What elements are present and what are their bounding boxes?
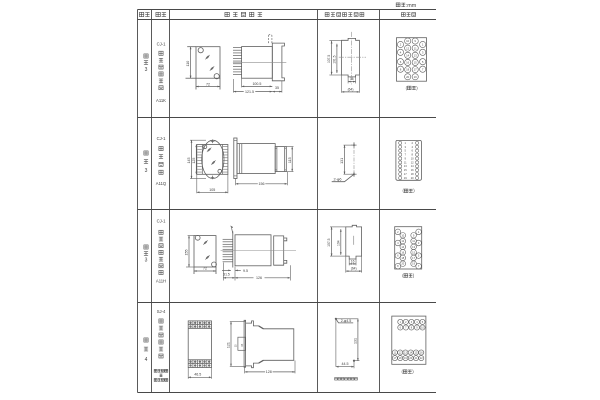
svg-text:1: 1	[405, 141, 407, 145]
svg-text:15: 15	[415, 352, 418, 355]
svg-text:): )	[413, 188, 415, 193]
svg-text:8: 8	[397, 264, 399, 268]
svg-text:131: 131	[354, 338, 358, 344]
svg-text:121: 121	[227, 342, 231, 348]
svg-text:3: 3	[418, 241, 420, 245]
svg-text:2: 2	[405, 321, 407, 324]
svg-text:): )	[413, 273, 415, 278]
svg-text:(64): (64)	[348, 87, 354, 91]
svg-text:3: 3	[145, 67, 148, 73]
svg-text:5: 5	[422, 60, 424, 64]
svg-text:6: 6	[400, 327, 402, 330]
svg-text:18: 18	[411, 172, 414, 176]
svg-text:20: 20	[401, 262, 404, 266]
svg-text:10: 10	[401, 233, 404, 237]
svg-text:7: 7	[422, 67, 424, 71]
svg-text:5: 5	[405, 149, 407, 153]
svg-text:16: 16	[420, 352, 423, 355]
svg-text:18: 18	[401, 256, 404, 260]
svg-text:19: 19	[404, 357, 407, 360]
svg-text:1: 1	[418, 230, 420, 234]
svg-text:11: 11	[412, 239, 415, 243]
svg-text:5: 5	[418, 254, 420, 258]
svg-text:6: 6	[400, 60, 402, 64]
svg-text:2: 2	[400, 43, 402, 47]
svg-text:13: 13	[404, 352, 407, 355]
svg-text:20: 20	[406, 75, 410, 79]
svg-text:46.5: 46.5	[194, 373, 201, 377]
svg-text:72: 72	[203, 267, 207, 271]
svg-text:11: 11	[414, 46, 417, 50]
svg-text:2: 2	[411, 141, 413, 145]
svg-text:3: 3	[145, 258, 148, 264]
svg-text:16: 16	[406, 61, 410, 65]
svg-text:11: 11	[404, 160, 407, 164]
svg-text:15: 15	[414, 61, 418, 65]
svg-text:16: 16	[401, 250, 404, 254]
svg-text:9: 9	[405, 156, 407, 160]
svg-text:4: 4	[400, 50, 402, 54]
svg-text:14: 14	[401, 245, 404, 249]
svg-text:31.5: 31.5	[223, 273, 230, 277]
svg-text:CJ-1: CJ-1	[157, 136, 167, 141]
svg-text:12: 12	[401, 239, 404, 243]
svg-text:156: 156	[259, 182, 265, 186]
svg-text:35: 35	[240, 343, 244, 346]
svg-text:4: 4	[416, 321, 418, 324]
svg-text:15: 15	[234, 344, 238, 347]
svg-text:13: 13	[404, 164, 407, 168]
svg-text:10: 10	[411, 156, 414, 160]
svg-text:105: 105	[209, 188, 215, 192]
svg-text:15: 15	[404, 168, 407, 172]
svg-text:9: 9	[416, 327, 418, 330]
svg-text:8: 8	[400, 67, 402, 71]
svg-text:12: 12	[399, 352, 402, 355]
svg-text:17: 17	[404, 172, 407, 176]
svg-text:19: 19	[412, 262, 415, 266]
svg-text:131: 131	[340, 158, 344, 164]
svg-text:3: 3	[145, 168, 148, 174]
svg-text:128: 128	[266, 370, 272, 374]
svg-text:7: 7	[418, 264, 420, 268]
svg-text:9: 9	[413, 233, 415, 237]
svg-text:100.5: 100.5	[252, 82, 261, 86]
svg-text:19: 19	[404, 176, 407, 180]
svg-text:126: 126	[256, 276, 262, 280]
svg-text::mm: :mm	[406, 3, 417, 9]
svg-text:4: 4	[145, 357, 148, 363]
svg-text:CJ-1: CJ-1	[157, 41, 167, 46]
svg-text:9: 9	[414, 39, 416, 43]
svg-text:2-φ6: 2-φ6	[334, 178, 342, 182]
svg-text:20: 20	[409, 357, 412, 360]
svg-text:12: 12	[411, 160, 414, 164]
svg-text:6: 6	[411, 149, 413, 153]
svg-text:20: 20	[411, 176, 414, 180]
svg-text:125: 125	[192, 158, 196, 164]
svg-text:7: 7	[405, 327, 407, 330]
svg-text:10: 10	[421, 327, 424, 330]
svg-text:A11Q: A11Q	[156, 181, 167, 186]
svg-text:3: 3	[411, 321, 413, 324]
svg-text:14: 14	[409, 352, 412, 355]
svg-text:107.5: 107.5	[327, 55, 331, 63]
svg-text:21: 21	[415, 357, 418, 360]
svg-text:(64): (64)	[351, 267, 357, 271]
svg-text:16: 16	[350, 77, 354, 81]
svg-text:4: 4	[397, 241, 399, 245]
svg-text:72: 72	[206, 82, 210, 86]
svg-text:A11H: A11H	[156, 278, 166, 283]
svg-text:18: 18	[406, 68, 410, 72]
svg-text:3: 3	[405, 145, 407, 149]
svg-text:6: 6	[397, 254, 399, 258]
svg-text:A11K: A11K	[156, 98, 166, 103]
svg-text:8: 8	[411, 327, 413, 330]
svg-text:19: 19	[414, 75, 418, 79]
svg-text:7: 7	[405, 153, 407, 157]
svg-text:35: 35	[275, 86, 279, 90]
svg-text:17: 17	[394, 357, 397, 360]
svg-text:145: 145	[187, 158, 191, 164]
svg-text:): )	[416, 85, 418, 90]
svg-text:1: 1	[422, 43, 424, 47]
svg-text:14: 14	[406, 53, 410, 57]
svg-text:4: 4	[411, 145, 413, 149]
svg-text:8: 8	[411, 153, 413, 157]
svg-text:13: 13	[414, 53, 418, 57]
svg-text:5: 5	[422, 321, 424, 324]
svg-text:10: 10	[406, 39, 410, 43]
svg-text:115: 115	[288, 157, 292, 163]
svg-text:22: 22	[420, 357, 423, 360]
svg-text:14: 14	[411, 164, 414, 168]
svg-text:17: 17	[412, 256, 415, 260]
svg-text:44.5: 44.5	[342, 362, 349, 366]
svg-text:104: 104	[336, 240, 340, 246]
svg-text:12: 12	[406, 46, 410, 50]
svg-text:13: 13	[412, 245, 415, 249]
svg-text:1: 1	[400, 321, 402, 324]
svg-text:17: 17	[414, 68, 418, 72]
svg-text:2: 2	[397, 230, 399, 234]
svg-text:107.5: 107.5	[327, 238, 331, 246]
svg-text:SJ-4: SJ-4	[157, 309, 166, 314]
svg-text:2-φ4.5: 2-φ4.5	[341, 319, 352, 323]
svg-text:101.5: 101.5	[333, 55, 337, 63]
svg-text:3: 3	[422, 50, 424, 54]
svg-text:11: 11	[394, 352, 397, 355]
svg-text:155: 155	[185, 250, 189, 256]
svg-text:15: 15	[412, 250, 415, 254]
svg-text:): )	[412, 369, 414, 374]
svg-text:18: 18	[399, 357, 402, 360]
svg-text:110: 110	[186, 61, 190, 67]
svg-text:CJ-1: CJ-1	[157, 218, 167, 223]
svg-text:16: 16	[411, 168, 414, 172]
svg-text:16: 16	[351, 259, 355, 263]
svg-text:121.5: 121.5	[245, 90, 254, 94]
svg-text:9.5: 9.5	[243, 269, 248, 273]
